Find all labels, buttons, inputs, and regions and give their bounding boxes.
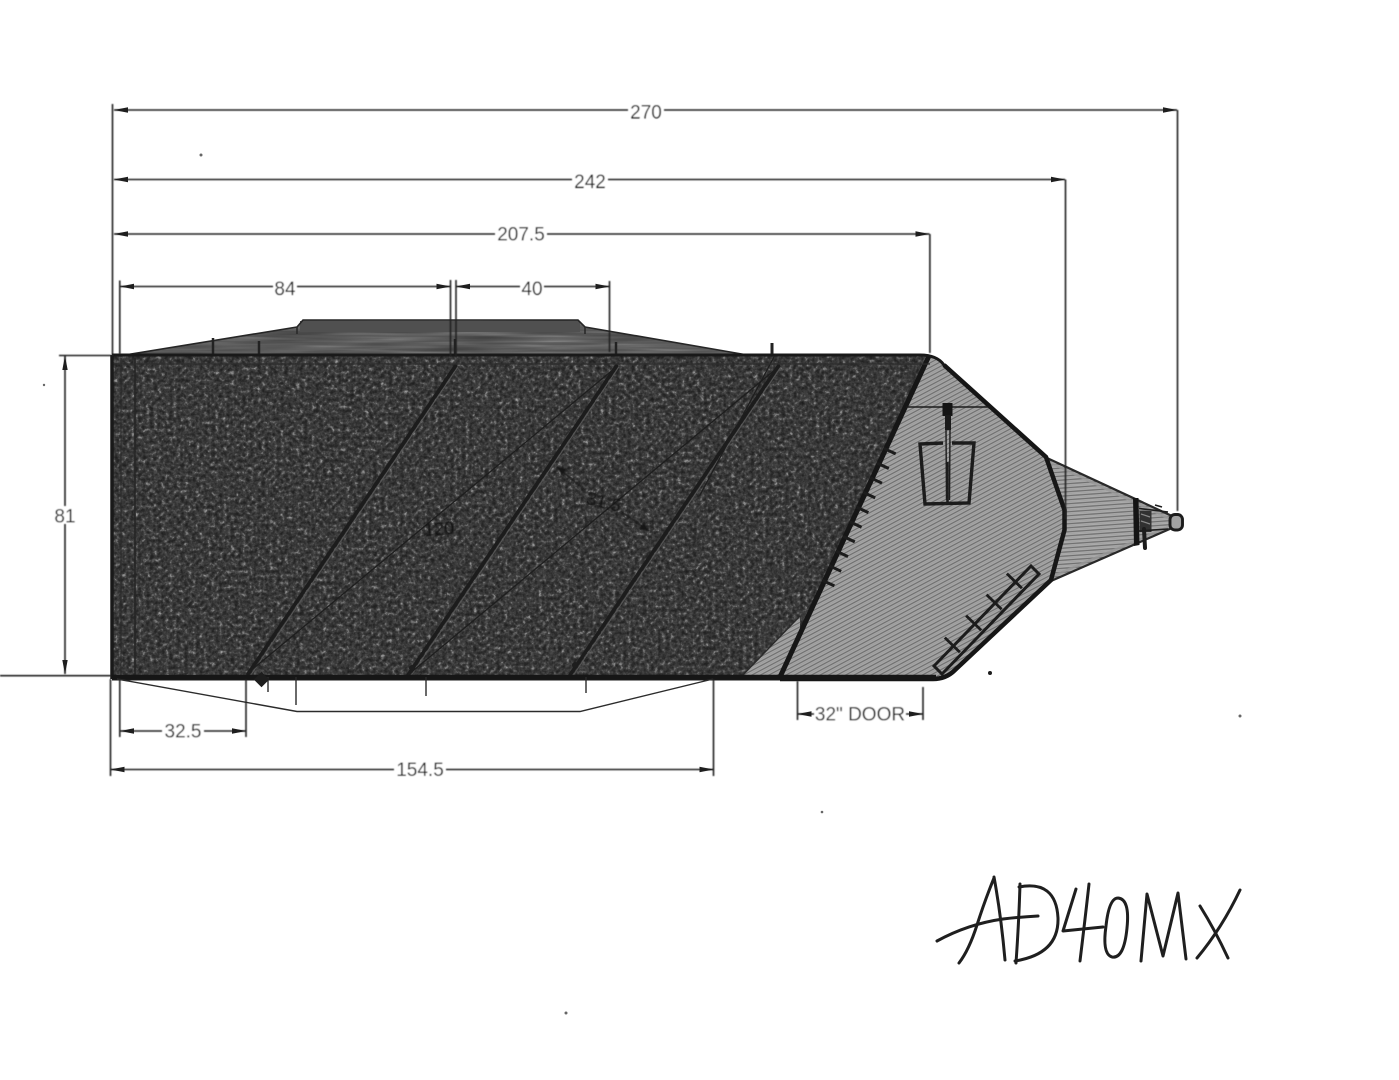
svg-text:120: 120 — [423, 518, 455, 541]
svg-text:154.5: 154.5 — [396, 760, 444, 781]
svg-text:242: 242 — [574, 172, 606, 193]
svg-text:40: 40 — [521, 279, 542, 300]
svg-text:270: 270 — [630, 103, 662, 124]
svg-text:84: 84 — [274, 279, 296, 300]
svg-text:207.5: 207.5 — [497, 225, 545, 246]
svg-text:32" DOOR: 32" DOOR — [815, 705, 905, 726]
svg-text:32.5: 32.5 — [165, 722, 202, 743]
svg-text:81: 81 — [54, 507, 75, 528]
